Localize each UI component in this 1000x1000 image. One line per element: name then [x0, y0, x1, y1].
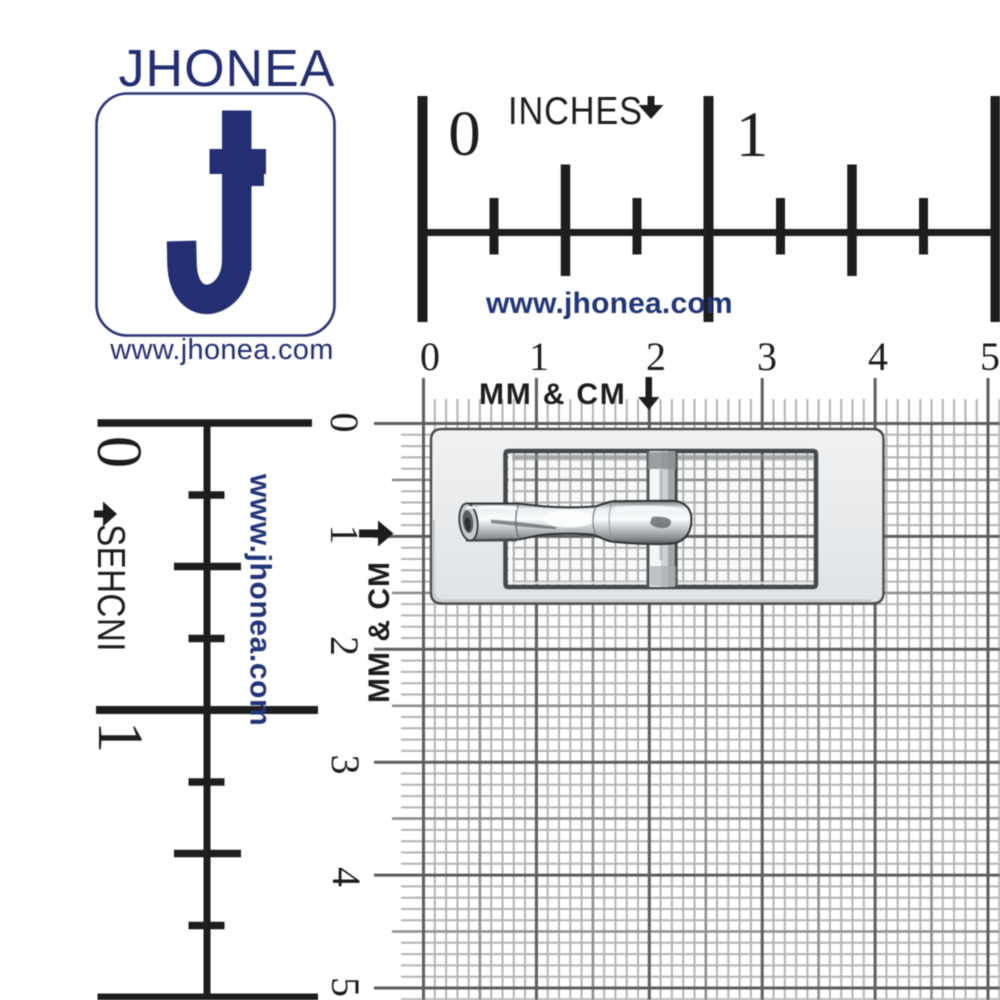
- svg-text:www.jhonea.com: www.jhonea.com: [244, 473, 277, 726]
- svg-text:0: 0: [322, 413, 367, 433]
- svg-text:3: 3: [757, 334, 777, 379]
- svg-text:1: 1: [529, 334, 549, 379]
- svg-text:0: 0: [83, 436, 155, 469]
- svg-text:1: 1: [84, 721, 156, 754]
- svg-text:5: 5: [980, 334, 1000, 379]
- svg-text:2: 2: [646, 334, 666, 379]
- svg-text:INCHES: INCHES: [508, 89, 643, 133]
- svg-text:JHONEA: JHONEA: [119, 40, 336, 98]
- svg-text:SEHCNI: SEHCNI: [89, 524, 133, 652]
- svg-text:0: 0: [448, 98, 481, 170]
- svg-text:0: 0: [420, 334, 440, 379]
- svg-text:5: 5: [323, 977, 368, 997]
- svg-text:www.jhonea.com: www.jhonea.com: [485, 287, 733, 320]
- svg-text:4: 4: [324, 867, 369, 887]
- svg-text:3: 3: [323, 755, 368, 775]
- svg-text:MM & CM: MM & CM: [479, 378, 627, 411]
- svg-text:4: 4: [868, 334, 888, 379]
- svg-text:2: 2: [322, 636, 367, 656]
- svg-text:MM & CM: MM & CM: [363, 561, 396, 703]
- svg-text:www.jhonea.com: www.jhonea.com: [109, 334, 333, 366]
- svg-text:1: 1: [736, 99, 769, 171]
